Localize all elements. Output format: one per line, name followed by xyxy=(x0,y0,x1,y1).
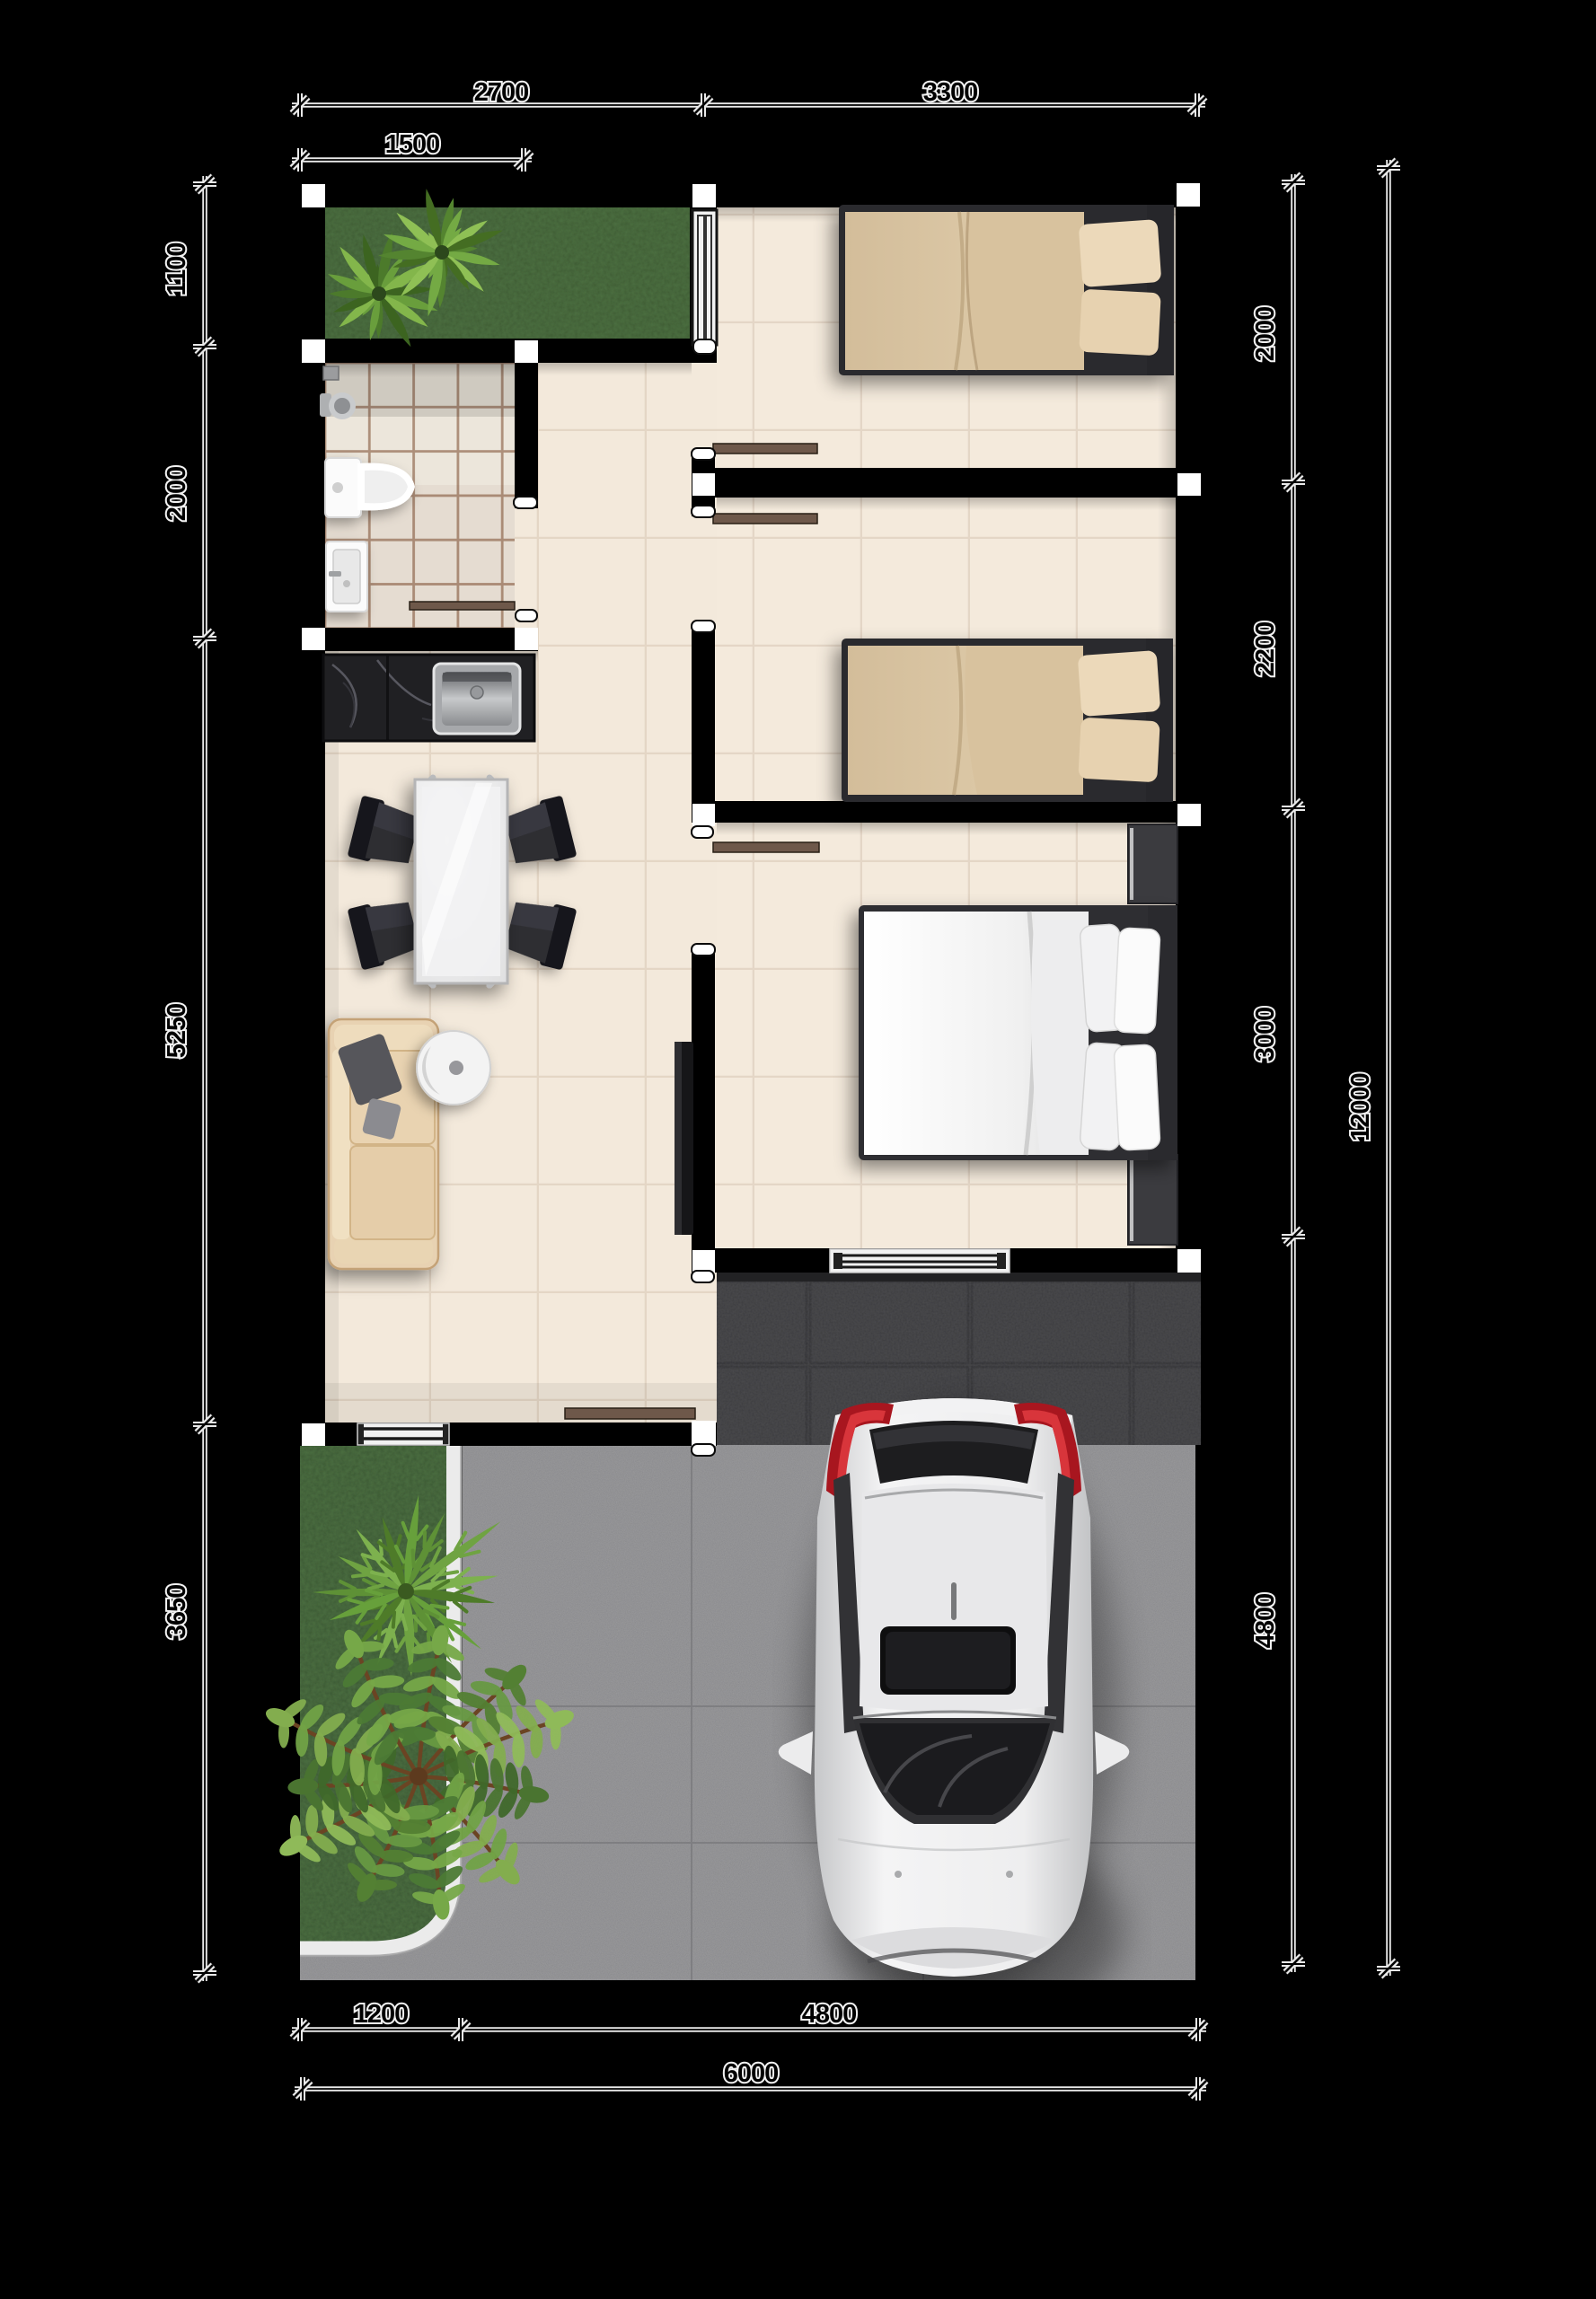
svg-text:3300: 3300 xyxy=(923,78,978,107)
svg-text:5250: 5250 xyxy=(163,1004,191,1059)
svg-text:2700: 2700 xyxy=(474,78,529,107)
svg-text:1200: 1200 xyxy=(354,2000,409,2029)
svg-text:3000: 3000 xyxy=(1251,1008,1280,1062)
svg-text:1500: 1500 xyxy=(385,130,440,159)
svg-text:1100: 1100 xyxy=(163,243,191,296)
svg-text:4800: 4800 xyxy=(1251,1594,1280,1649)
svg-text:2000: 2000 xyxy=(163,467,191,522)
svg-text:12000: 12000 xyxy=(1346,1073,1375,1141)
svg-text:6000: 6000 xyxy=(724,2059,779,2088)
svg-text:4800: 4800 xyxy=(802,2000,857,2029)
svg-text:3650: 3650 xyxy=(163,1585,191,1640)
svg-text:2000: 2000 xyxy=(1251,307,1280,362)
svg-text:2200: 2200 xyxy=(1251,622,1280,677)
